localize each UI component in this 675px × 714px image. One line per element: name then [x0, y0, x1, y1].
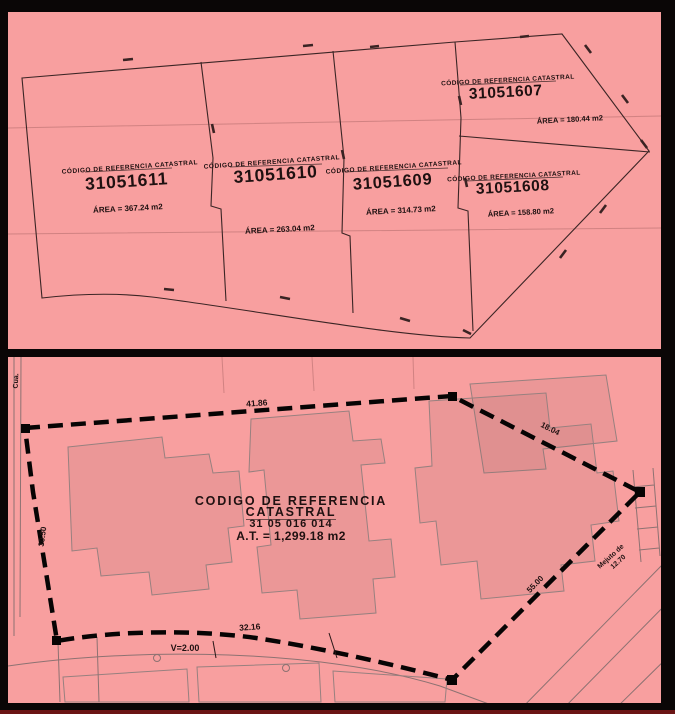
- plan-svg: CÓDIGO DE REFERENCIA CATASTRAL 31051611 …: [0, 0, 675, 714]
- setback-label: V=2.00: [171, 643, 200, 653]
- frame-top: [0, 0, 675, 12]
- frame-divider: [0, 349, 675, 357]
- frame-bottom-accent: [0, 710, 675, 714]
- street-left-label: Cua.: [13, 373, 21, 389]
- center-title-line2: CATASTRAL: [246, 505, 337, 519]
- dim-bottom-label: 32.16: [239, 621, 261, 632]
- cadastral-map: CÓDIGO DE REFERENCIA CATASTRAL 31051611 …: [0, 0, 675, 714]
- dim-top-label: 41.86: [246, 397, 268, 408]
- total-area: A.T. = 1,299.18 m2: [236, 529, 346, 543]
